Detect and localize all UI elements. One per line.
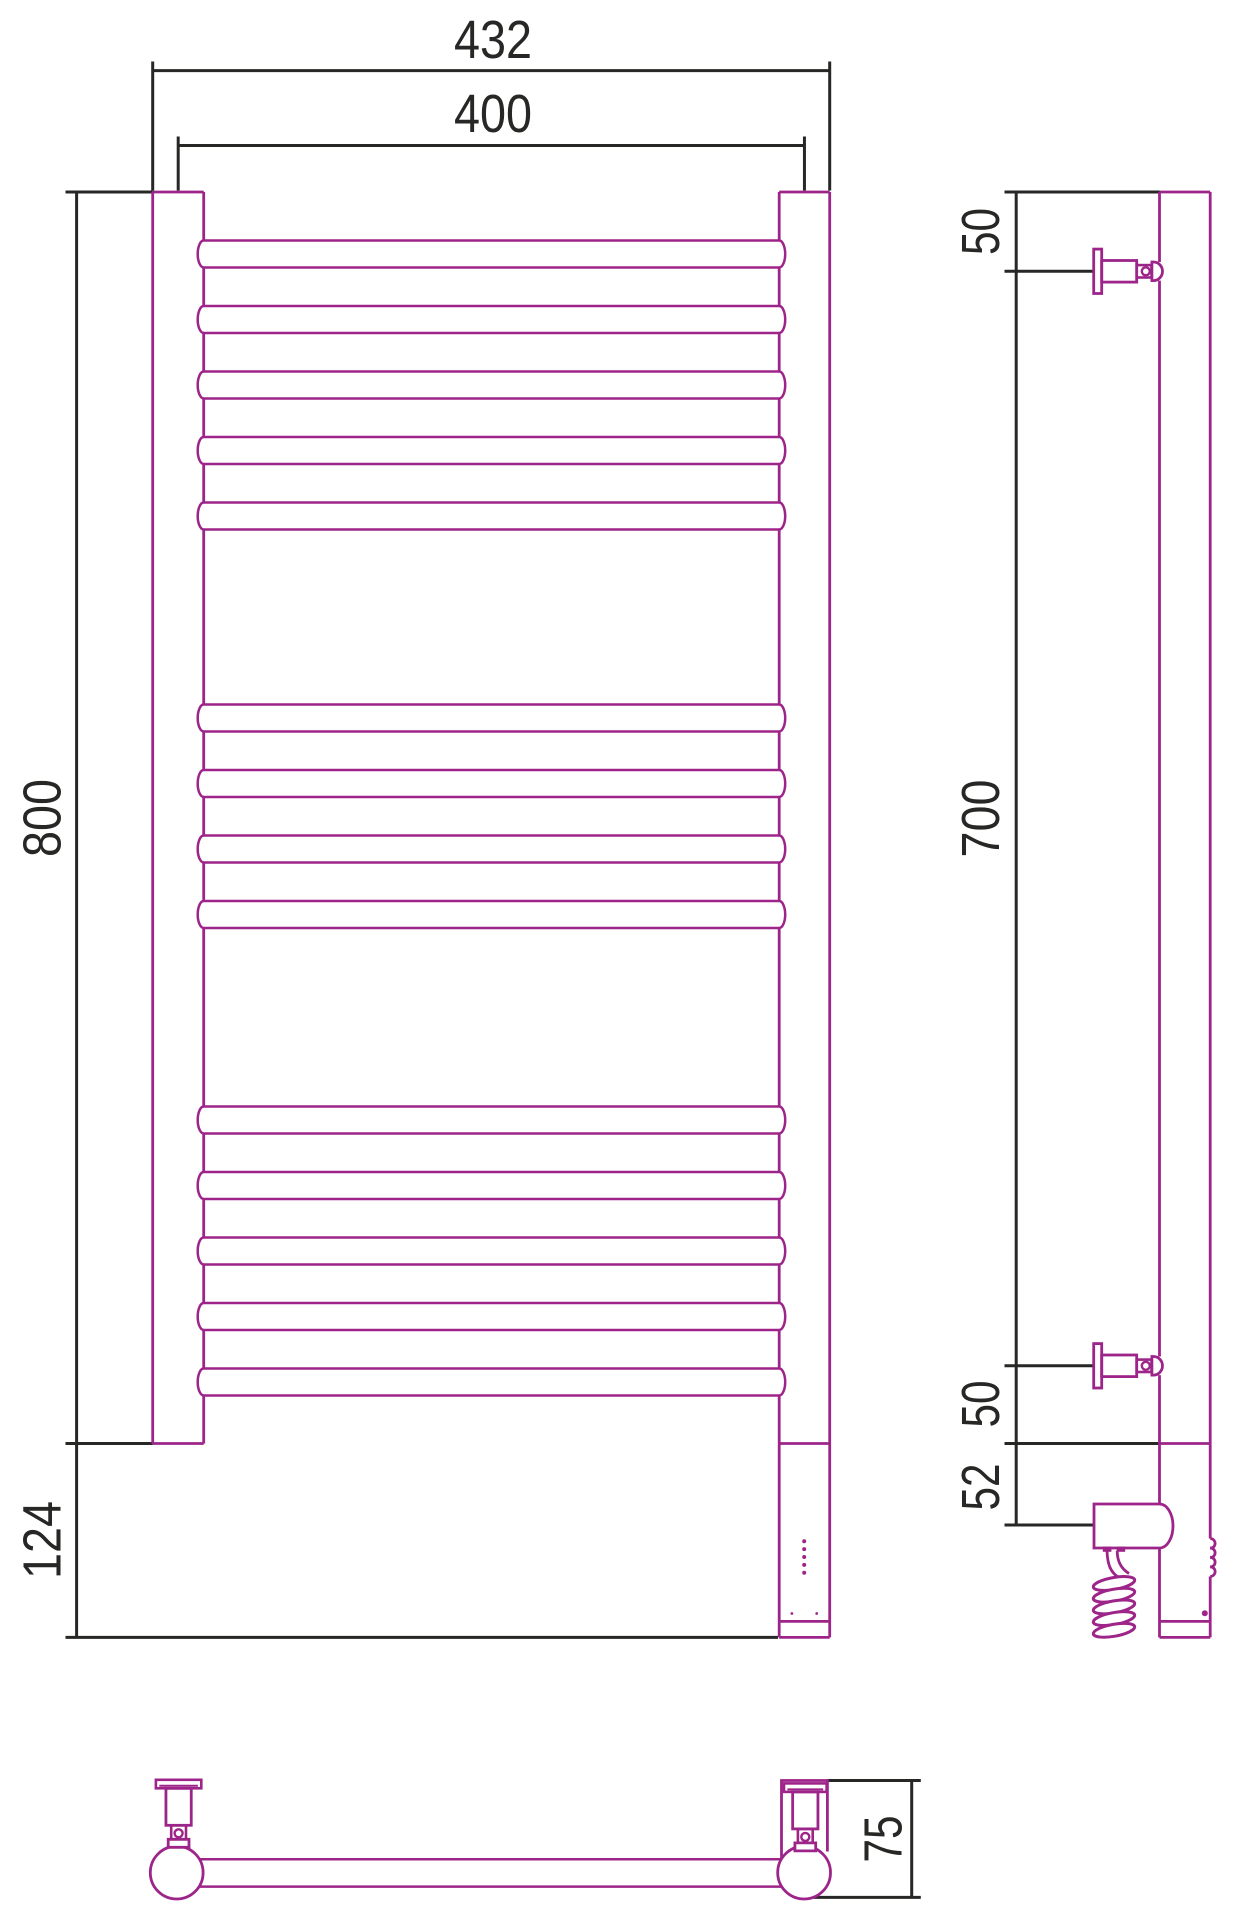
svg-text:400: 400 bbox=[454, 84, 532, 144]
svg-text:700: 700 bbox=[951, 780, 1011, 858]
svg-text:432: 432 bbox=[454, 10, 532, 70]
svg-text:75: 75 bbox=[854, 1816, 914, 1863]
svg-text:50: 50 bbox=[951, 1381, 1011, 1428]
svg-text:50: 50 bbox=[951, 208, 1011, 255]
svg-text:52: 52 bbox=[951, 1464, 1011, 1511]
svg-text:800: 800 bbox=[13, 779, 73, 857]
svg-text:124: 124 bbox=[13, 1501, 73, 1579]
